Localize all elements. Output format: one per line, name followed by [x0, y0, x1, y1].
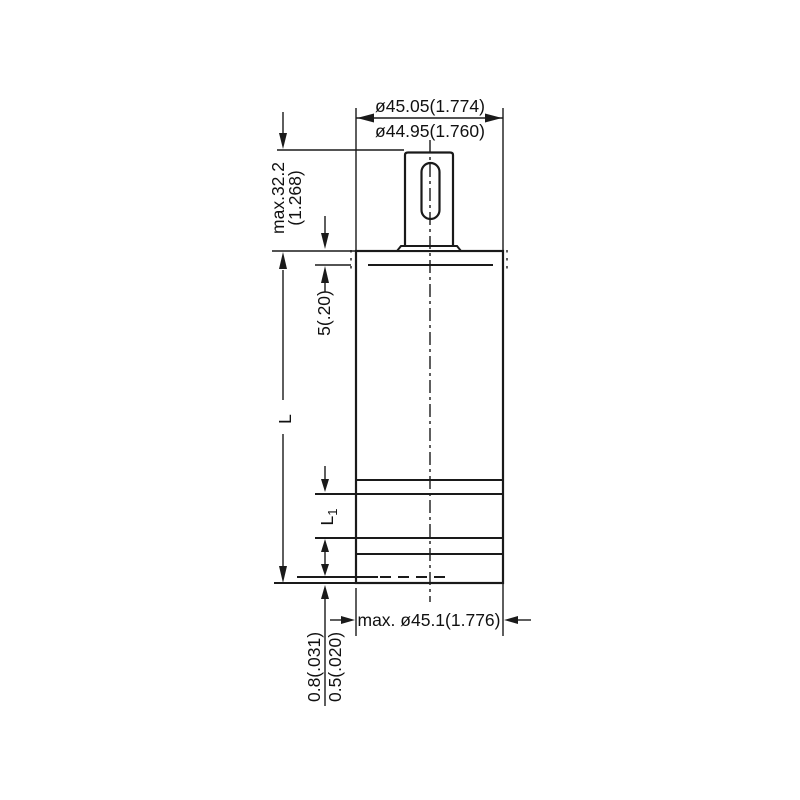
- standoff-min-label: 0.5(.020): [325, 632, 345, 702]
- arrowhead-left-icon: [357, 114, 374, 123]
- top-diameter-max-label: ø45.05(1.774): [375, 96, 485, 116]
- arrowhead-down-icon: [279, 133, 287, 149]
- arrowhead-up-icon: [279, 252, 287, 269]
- terminal-height-label-group: max.32.2 (1.268): [268, 162, 305, 234]
- arrowhead-left-icon: [504, 616, 518, 624]
- arrowhead-right-icon: [485, 114, 502, 123]
- arrowhead-down-icon: [321, 564, 329, 576]
- technical-drawing: ø45.05(1.774) ø44.95(1.760) max.32.2 (1.…: [0, 0, 800, 800]
- drawing-canvas: ø45.05(1.774) ø44.95(1.760) max.32.2 (1.…: [0, 0, 800, 800]
- length1-subscript: 1: [325, 509, 340, 516]
- arrowhead-up-icon: [321, 539, 329, 552]
- arrowhead-up-icon: [321, 585, 329, 599]
- arrowhead-right-icon: [341, 616, 355, 624]
- length-label-group: L: [275, 414, 295, 424]
- shoulder-label-group: 5(.20): [314, 290, 334, 336]
- arrowhead-down-icon: [321, 479, 329, 492]
- arrowhead-down-icon: [321, 233, 329, 249]
- arrowhead-down-icon: [279, 566, 287, 583]
- bottom-diameter-label: max. ø45.1(1.776): [358, 610, 501, 630]
- arrowhead-up-icon: [321, 266, 329, 283]
- top-diameter-min-label: ø44.95(1.760): [375, 121, 485, 141]
- length1-main: L: [317, 515, 337, 525]
- length-label: L: [275, 414, 295, 424]
- terminal-height-inch-label: (1.268): [285, 170, 305, 225]
- component-outline: [274, 153, 507, 584]
- standoff-max-label: 0.8(.031): [304, 632, 324, 702]
- terminal-flange: [397, 246, 461, 251]
- length1-label-group: L1: [317, 509, 340, 526]
- shoulder-label: 5(.20): [314, 290, 334, 336]
- standoff-label-group: 0.8(.031) 0.5(.020): [304, 632, 345, 702]
- length1-label: L1: [317, 509, 340, 526]
